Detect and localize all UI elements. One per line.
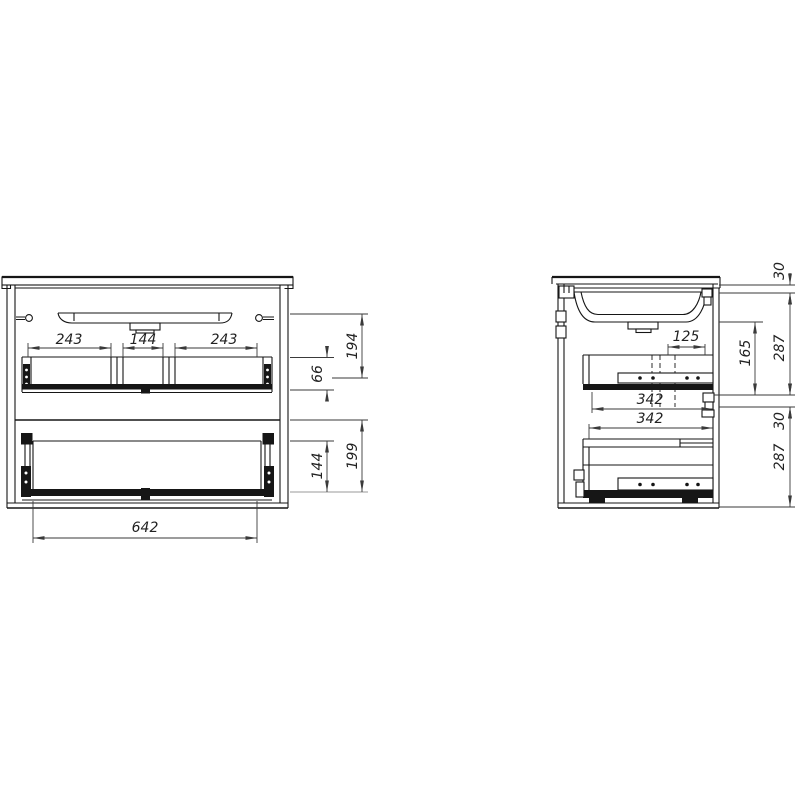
front-sink-basin <box>58 313 232 333</box>
dim-upper-drawer-depth: 342 <box>637 392 664 408</box>
dim-countertop-thickness: 30 <box>772 262 788 280</box>
dim-lower-section-height: 199 <box>345 443 361 470</box>
upper-drawer-latch <box>141 384 150 394</box>
dim-compartment-left: 243 <box>56 332 83 348</box>
side-drain-outlet <box>628 322 658 329</box>
front-view: 243 144 243 194 66 199 144 642 <box>2 277 368 543</box>
dim-upper-section-height: 194 <box>345 333 361 360</box>
front-carcass <box>7 285 288 508</box>
front-upper-drawer <box>22 357 272 394</box>
lower-drawer-bracket-left <box>21 433 33 445</box>
dim-upper-drawer-side-height: 66 <box>310 365 326 383</box>
upper-drawer-dividers <box>111 357 175 384</box>
side-front-bracket-mid <box>702 393 714 417</box>
dim-sink-clearance: 165 <box>738 340 754 367</box>
drawing-page: 243 144 243 194 66 199 144 642 <box>0 0 800 800</box>
dim-compartment-right: 243 <box>211 332 238 348</box>
dim-lower-section-height-side: 287 <box>772 444 788 471</box>
dim-lower-drawer-depth: 342 <box>637 411 664 427</box>
front-drain-outlet <box>130 323 160 330</box>
front-lower-drawer <box>21 433 274 500</box>
front-mounting-pin-left <box>16 315 32 322</box>
dim-lower-drawer-side-height: 144 <box>310 453 326 480</box>
side-lower-drawer <box>574 439 713 504</box>
front-mounting-pin-right <box>256 315 274 322</box>
dim-mid-gap: 30 <box>772 412 788 430</box>
dim-front-inset: 125 <box>673 329 700 345</box>
dim-drawer-width: 642 <box>132 520 159 536</box>
lower-drawer-bracket-right <box>263 433 275 445</box>
lower-drawer-latch <box>141 488 150 500</box>
side-countertop <box>552 277 720 288</box>
side-sink-basin <box>564 288 713 333</box>
front-countertop <box>2 277 293 289</box>
dim-upper-section-height-side: 287 <box>772 335 788 362</box>
technical-drawing-canvas: 243 144 243 194 66 199 144 642 <box>0 0 800 800</box>
side-front-bracket-top <box>702 289 712 305</box>
side-view: 125 165 342 342 30 287 30 <box>552 262 795 508</box>
dim-compartment-middle: 144 <box>130 332 157 348</box>
side-wall-bracket <box>556 286 574 338</box>
